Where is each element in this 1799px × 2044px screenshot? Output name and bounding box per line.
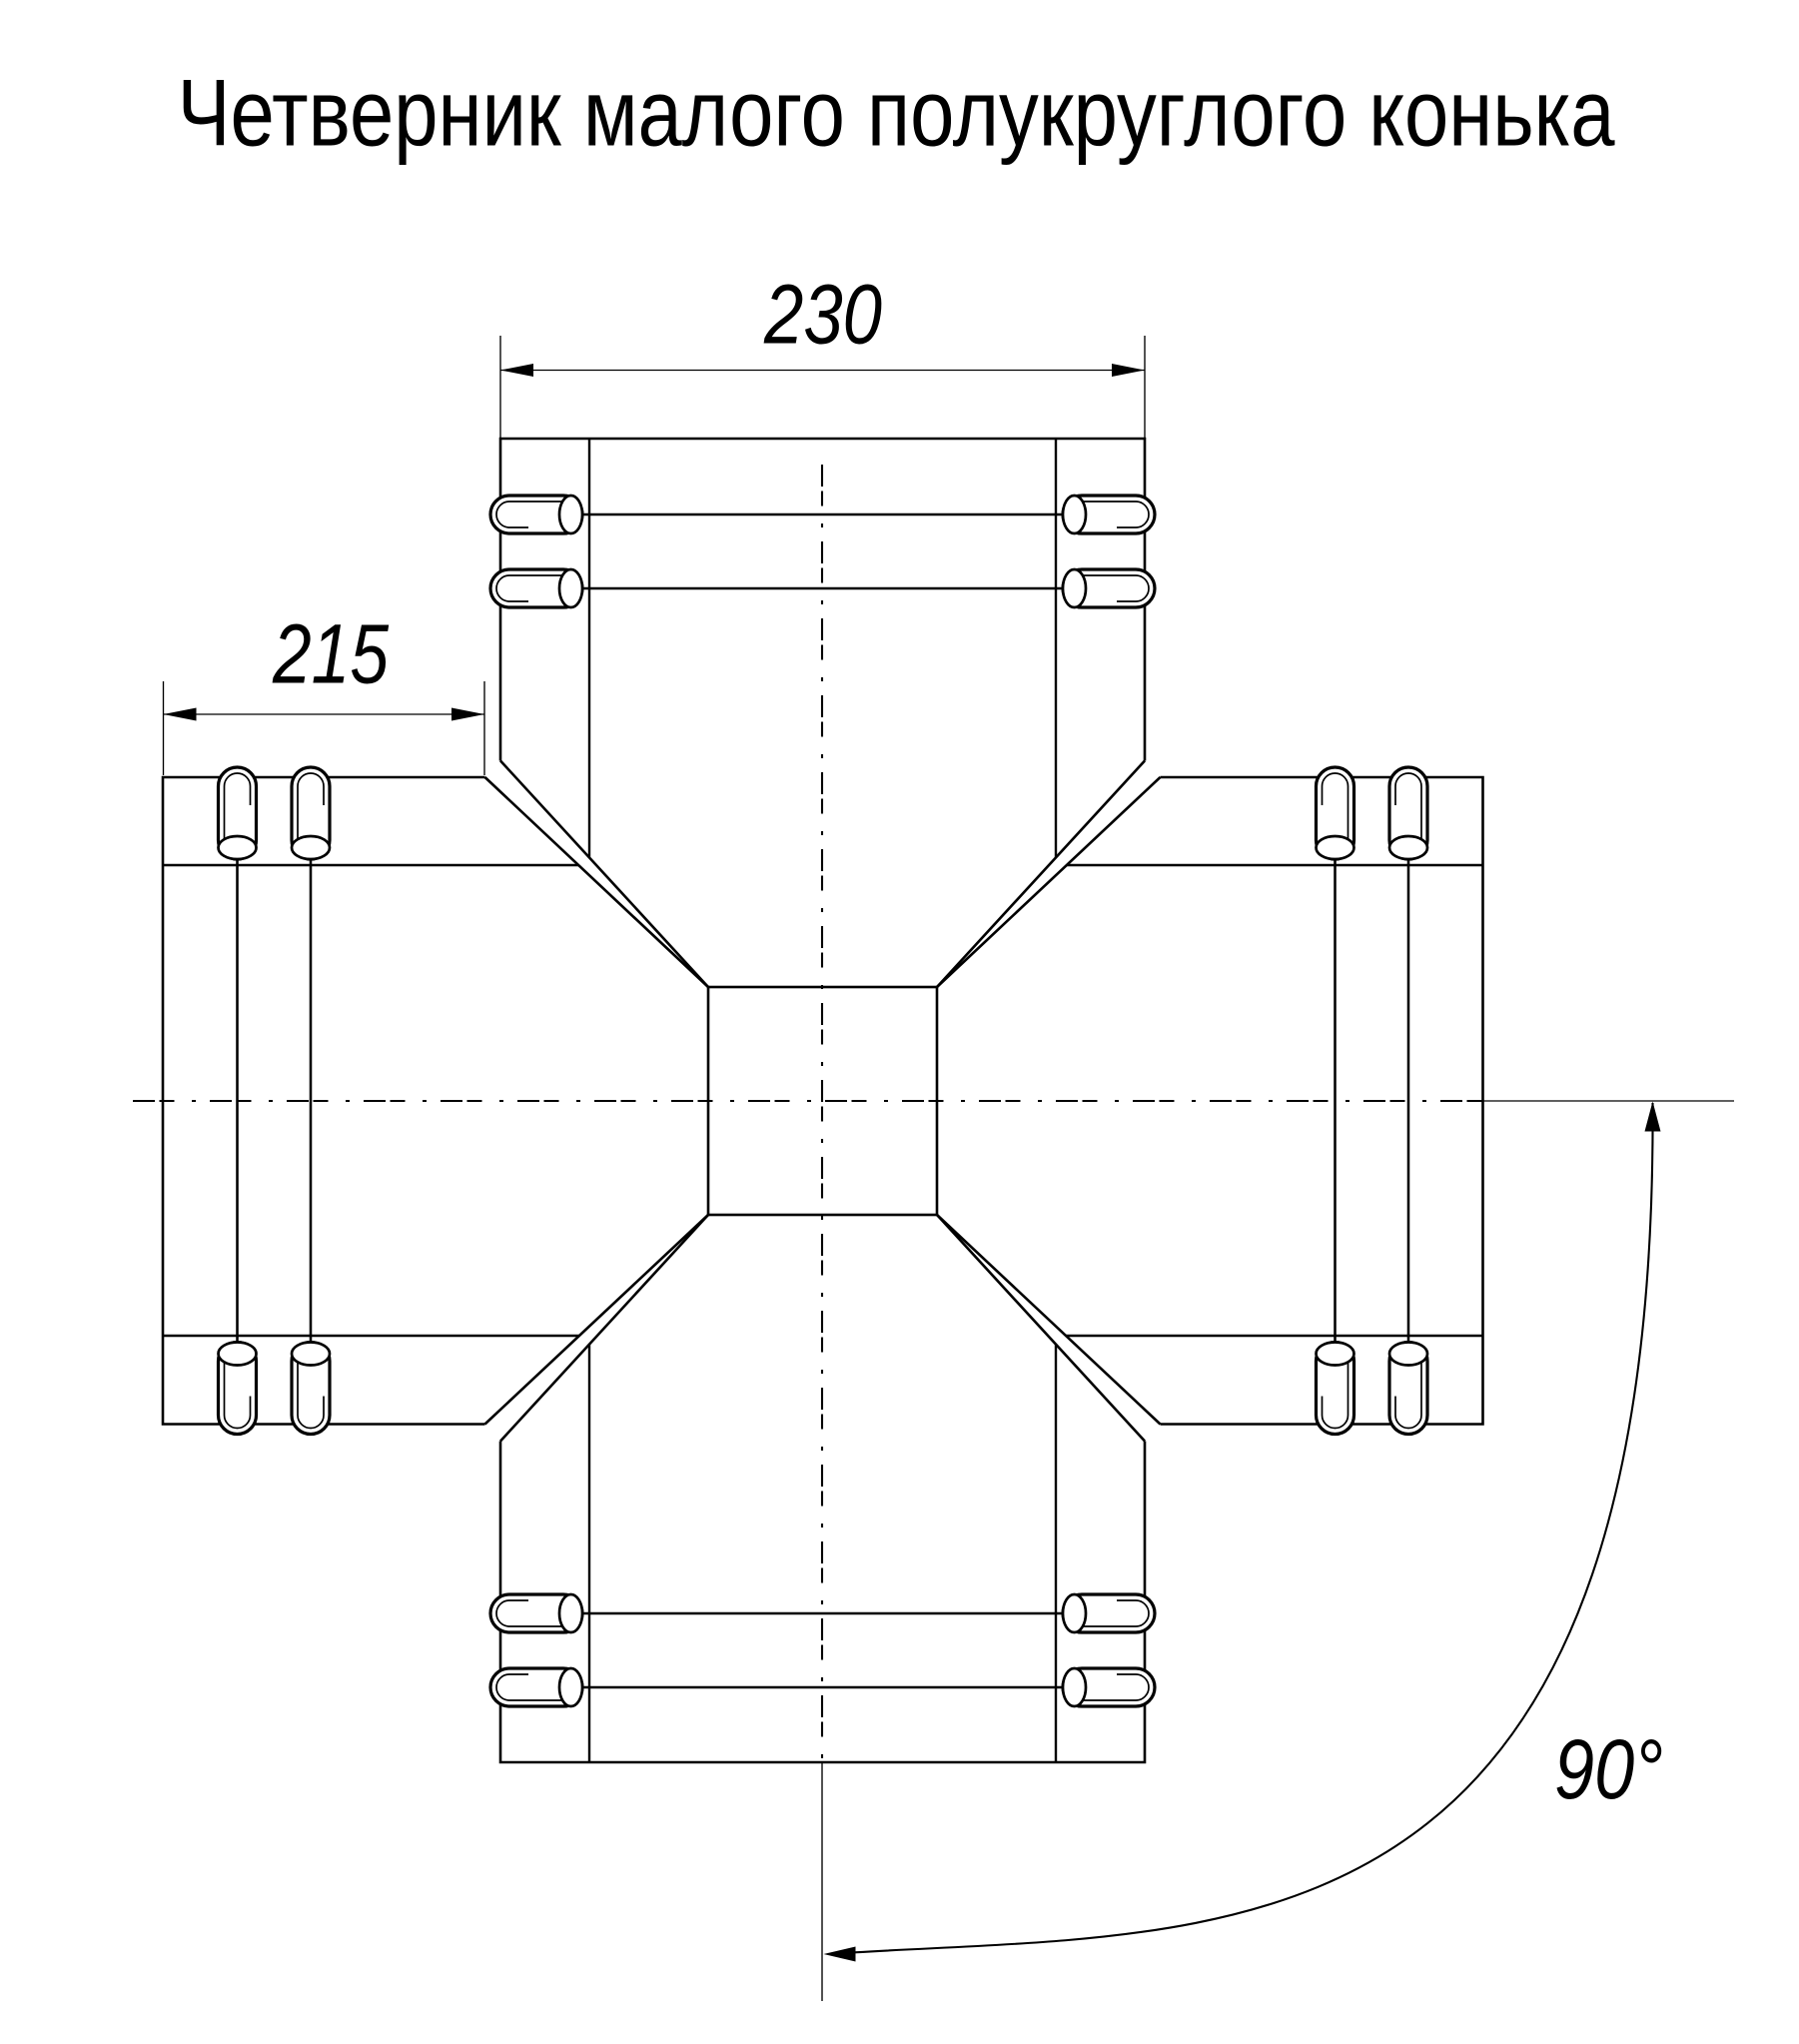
- svg-text:Четверник малого полукруглого: Четверник малого полукруглого конька: [178, 61, 1615, 167]
- svg-text:90°: 90°: [1554, 1722, 1663, 1816]
- svg-text:215: 215: [272, 607, 389, 701]
- svg-text:230: 230: [763, 268, 882, 362]
